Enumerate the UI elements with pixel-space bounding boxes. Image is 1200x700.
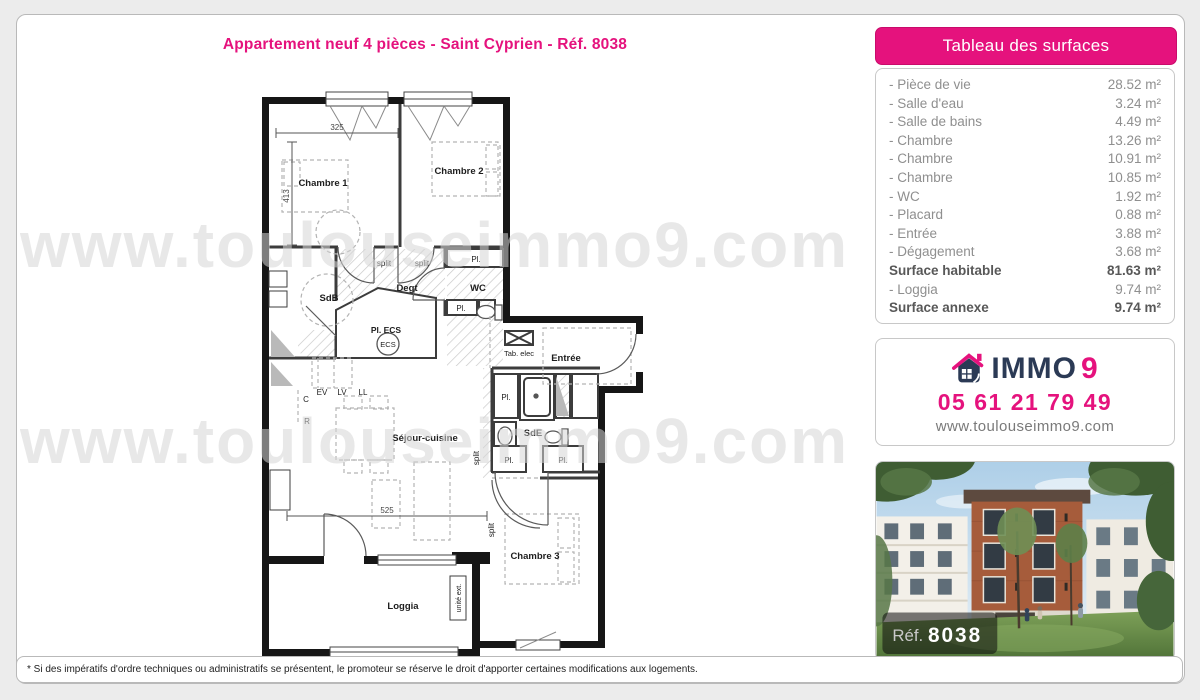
- room-label-chambre1: Chambre 1: [298, 178, 348, 189]
- label-pl-2: Pl.: [456, 304, 465, 313]
- label-tab-elec: Tab. elec: [504, 349, 534, 358]
- table-row-surface-annexe: Surface annexe9.74 m²: [889, 299, 1161, 318]
- label-pl-4: Pl.: [504, 456, 513, 465]
- room-label-wc: WC: [470, 283, 486, 294]
- row-label: - Chambre: [889, 150, 953, 169]
- row-label: Surface habitable: [889, 262, 1002, 281]
- room-label-loggia: Loggia: [387, 601, 419, 612]
- room-label-sdb: SdB: [320, 293, 339, 304]
- row-value: 3.88 m²: [1115, 225, 1161, 244]
- room-label-chambre2: Chambre 2: [434, 166, 483, 177]
- row-label: - Salle d'eau: [889, 95, 964, 114]
- surfaces-table: - Pièce de vie28.52 m² - Salle d'eau3.24…: [875, 68, 1175, 324]
- brand-name: IMMO: [991, 352, 1077, 386]
- row-value: 9.74 m²: [1114, 299, 1161, 318]
- row-value: 0.88 m²: [1115, 206, 1161, 225]
- table-row: - WC1.92 m²: [889, 188, 1161, 207]
- page-title: Appartement neuf 4 pièces - Saint Cyprie…: [150, 36, 700, 54]
- surfaces-table-header: Tableau des surfaces: [875, 27, 1177, 65]
- label-pl-ecs: Pl. ECS: [371, 325, 402, 335]
- row-label: - WC: [889, 188, 920, 207]
- ref-value: 8038: [928, 624, 982, 647]
- table-row: - Pièce de vie28.52 m²: [889, 76, 1161, 95]
- table-row: - Chambre13.26 m²: [889, 132, 1161, 151]
- row-value: 81.63 m²: [1107, 262, 1161, 281]
- row-value: 10.91 m²: [1108, 150, 1161, 169]
- row-value: 4.49 m²: [1115, 113, 1161, 132]
- row-label: - Dégagement: [889, 243, 975, 262]
- row-label: - Entrée: [889, 225, 937, 244]
- label-split-1: split: [377, 259, 392, 268]
- room-label-chambre3: Chambre 3: [510, 551, 559, 562]
- footer-note: * Si des impératifs d'ordre techniques o…: [16, 656, 1183, 683]
- table-row: - Salle d'eau3.24 m²: [889, 95, 1161, 114]
- table-row: - Dégagement3.68 m²: [889, 243, 1161, 262]
- house-icon: [951, 352, 987, 386]
- row-value: 28.52 m²: [1108, 76, 1161, 95]
- row-label: - Chambre: [889, 132, 953, 151]
- agency-card: IMMO9 05 61 21 79 49 www.toulouseimmo9.c…: [875, 338, 1175, 446]
- row-label: - Chambre: [889, 169, 953, 188]
- label-ev: EV: [317, 388, 328, 397]
- row-value: 10.85 m²: [1108, 169, 1161, 188]
- label-ecs: ECS: [380, 340, 395, 349]
- brand-digit: 9: [1081, 352, 1099, 386]
- table-row: - Loggia9.74 m²: [889, 281, 1161, 300]
- row-value: 1.92 m²: [1115, 188, 1161, 207]
- table-row: - Salle de bains4.49 m²: [889, 113, 1161, 132]
- label-pl-3: Pl.: [501, 393, 510, 402]
- label-c: C: [303, 395, 309, 404]
- row-label: Surface annexe: [889, 299, 989, 318]
- table-row: - Chambre10.91 m²: [889, 150, 1161, 169]
- row-label: - Pièce de vie: [889, 76, 971, 95]
- dim-413: 413: [282, 189, 291, 203]
- room-label-degt: Degt: [396, 283, 418, 294]
- label-r: R: [304, 417, 310, 426]
- label-pl-1: Pl.: [471, 255, 480, 264]
- footer-note-text: * Si des impératifs d'ordre techniques o…: [27, 664, 698, 675]
- table-row: - Chambre10.85 m²: [889, 169, 1161, 188]
- building-render: Réf. 8038: [876, 462, 1174, 660]
- row-value: 9.74 m²: [1115, 281, 1161, 300]
- table-row: - Placard0.88 m²: [889, 206, 1161, 225]
- phone-number: 05 61 21 79 49: [876, 389, 1174, 416]
- floorplan: Chambre 1 Chambre 2 Chambre 3 SdB Degt W…: [250, 88, 650, 668]
- room-label-sde: SdE: [524, 428, 542, 439]
- dim-325: 325: [330, 123, 344, 132]
- room-label-entree: Entrée: [551, 353, 581, 364]
- label-split-2: split: [415, 259, 430, 268]
- building-photo: Réf. 8038: [875, 461, 1175, 661]
- label-split-3: split: [472, 450, 481, 465]
- row-value: 3.24 m²: [1115, 95, 1161, 114]
- row-value: 3.68 m²: [1115, 243, 1161, 262]
- label-split-4: split: [487, 522, 496, 537]
- ref-label: Réf.: [892, 626, 923, 645]
- label-ll: LL: [359, 388, 368, 397]
- brand-logo: IMMO9: [876, 352, 1174, 386]
- ref-badge: Réf. 8038: [882, 612, 997, 654]
- label-unite-ext: unité ext.: [456, 584, 463, 612]
- website-url: www.toulouseimmo9.com: [876, 418, 1174, 435]
- row-label: - Loggia: [889, 281, 938, 300]
- row-label: - Salle de bains: [889, 113, 982, 132]
- room-label-sejour: Séjour-cuisine: [392, 433, 457, 444]
- table-row: - Entrée3.88 m²: [889, 225, 1161, 244]
- label-lv: LV: [337, 388, 347, 397]
- label-pl-5: Pl.: [558, 456, 567, 465]
- table-row-surface-habitable: Surface habitable81.63 m²: [889, 262, 1161, 281]
- row-label: - Placard: [889, 206, 943, 225]
- dim-525: 525: [380, 506, 394, 515]
- row-value: 13.26 m²: [1108, 132, 1161, 151]
